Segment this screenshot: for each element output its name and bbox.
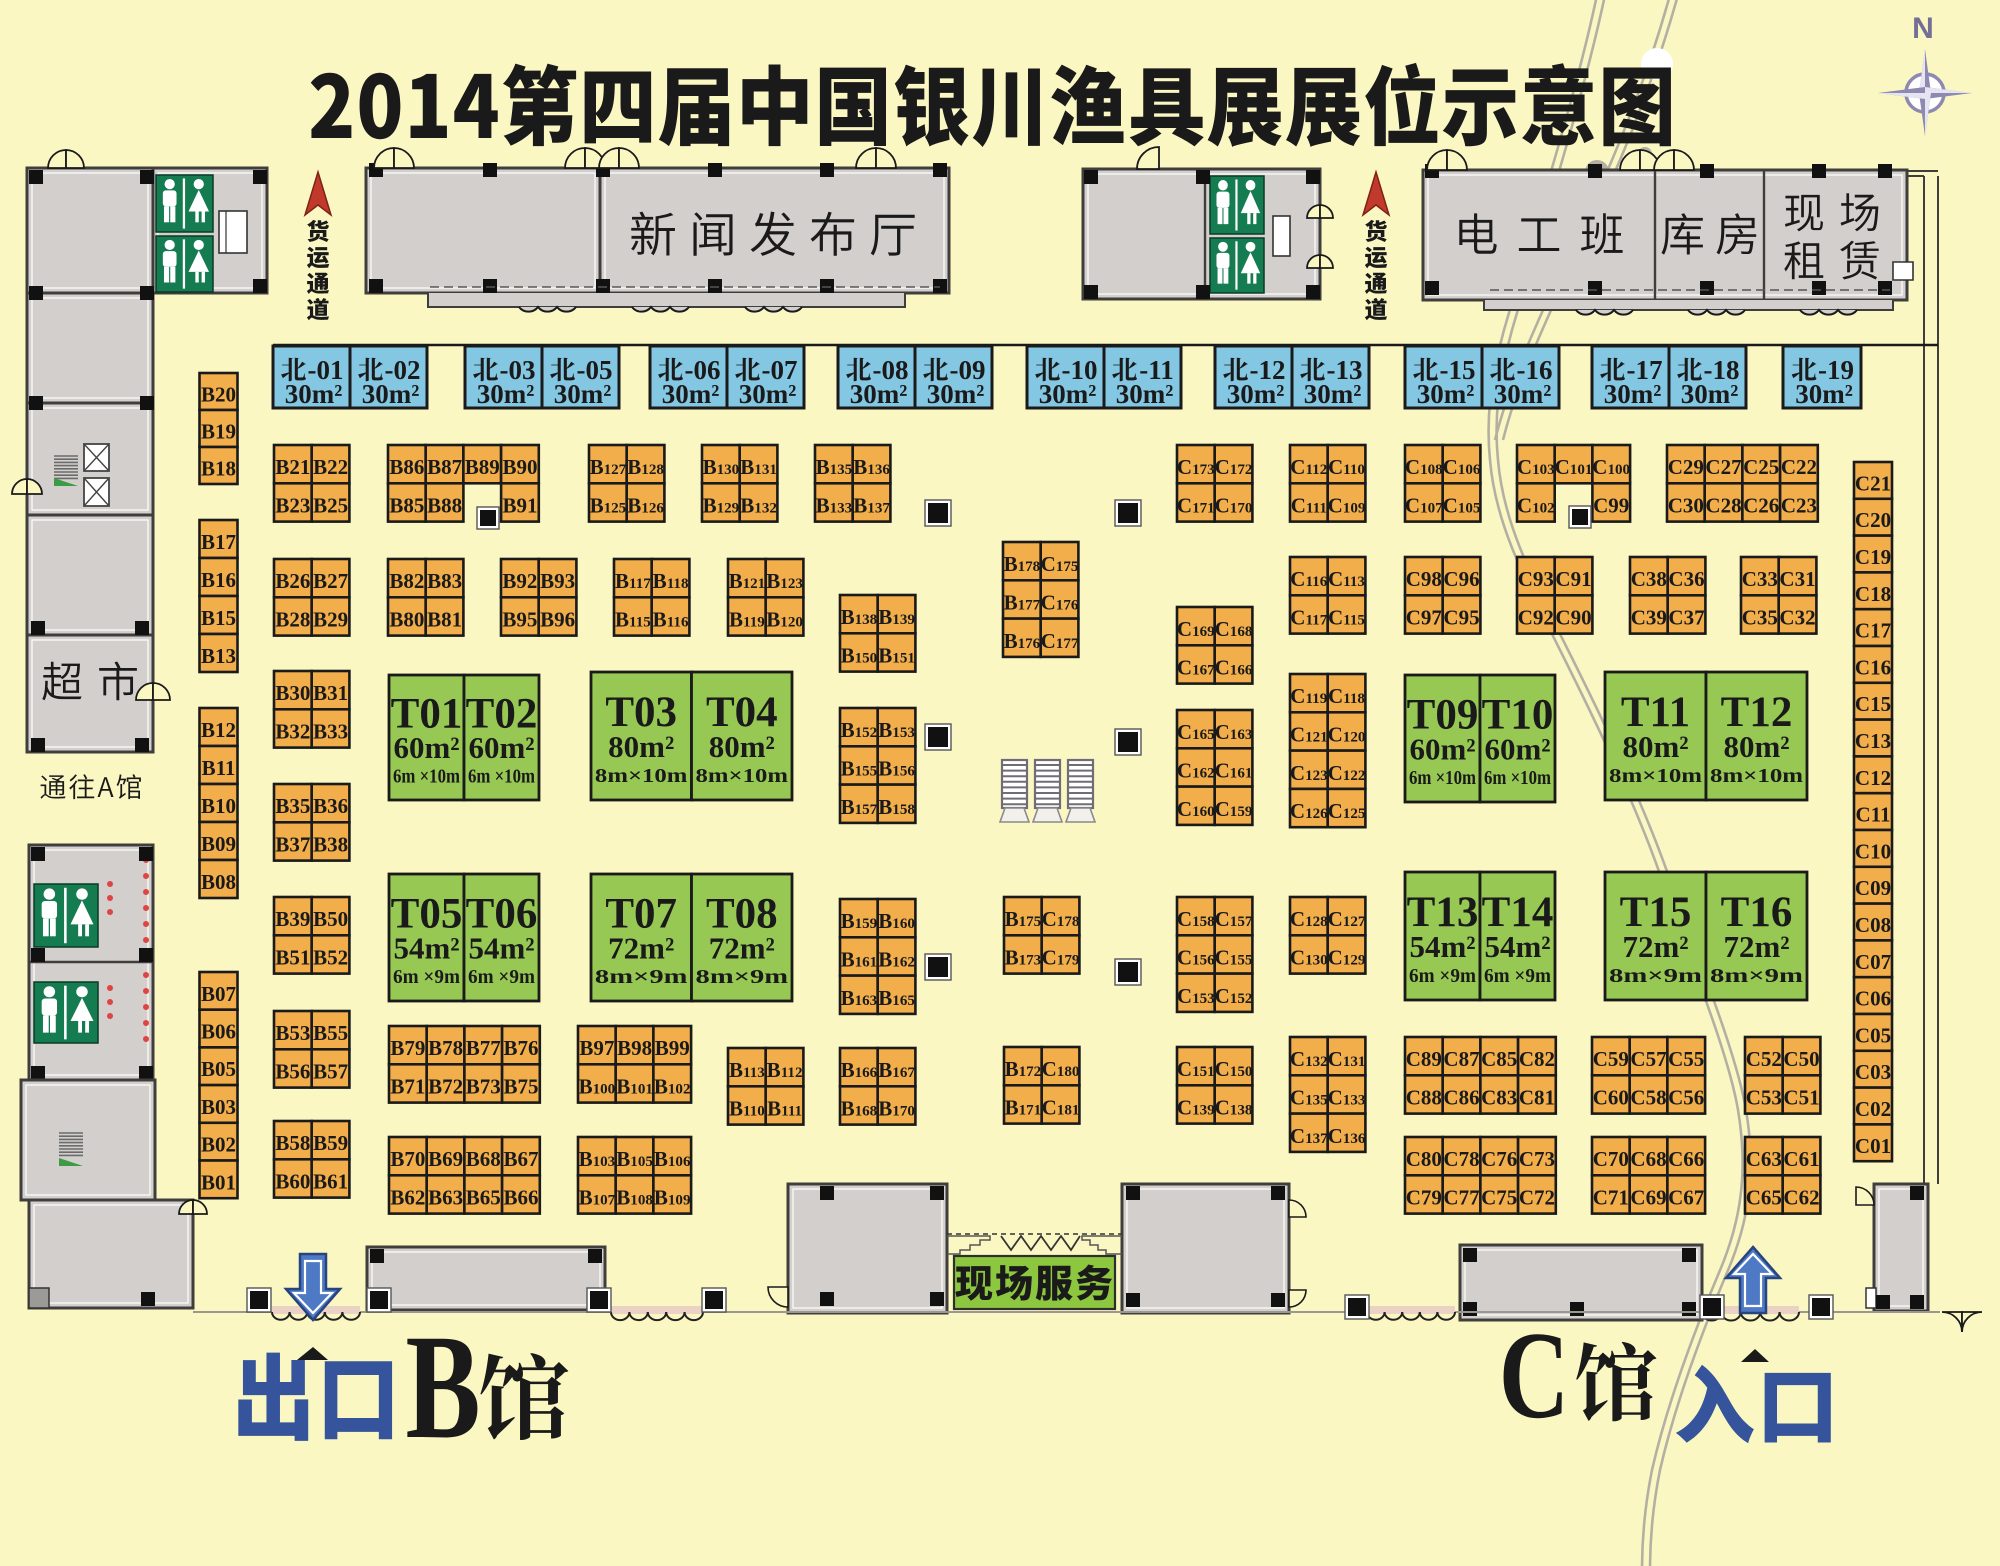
svg-text:B79: B79 <box>390 1036 425 1060</box>
svg-text:C07: C07 <box>1855 950 1891 974</box>
svg-text:B08: B08 <box>201 870 236 894</box>
svg-text:C09: C09 <box>1855 876 1891 900</box>
svg-text:8m×10m: 8m×10m <box>1710 765 1803 787</box>
svg-text:B37: B37 <box>275 832 310 856</box>
svg-text:C96: C96 <box>1443 567 1479 591</box>
svg-text:C13: C13 <box>1855 729 1891 753</box>
svg-text:30m²: 30m² <box>1417 379 1475 409</box>
svg-text:8m×9m: 8m×9m <box>595 966 688 988</box>
svg-text:C39: C39 <box>1631 605 1667 629</box>
svg-text:72m²: 72m² <box>1723 929 1789 964</box>
svg-text:N: N <box>1912 12 1934 45</box>
svg-text:B62: B62 <box>390 1186 425 1210</box>
svg-text:6m ×10m: 6m ×10m <box>1409 767 1476 789</box>
svg-text:B25: B25 <box>313 494 348 518</box>
svg-text:C99: C99 <box>1593 494 1629 518</box>
svg-text:B20: B20 <box>201 383 236 407</box>
svg-text:6m ×10m: 6m ×10m <box>1484 767 1551 789</box>
svg-text:B72: B72 <box>428 1075 463 1099</box>
svg-text:C73: C73 <box>1519 1147 1555 1171</box>
svg-text:C23: C23 <box>1781 494 1817 518</box>
svg-text:54m²: 54m² <box>1484 929 1550 964</box>
svg-text:B67: B67 <box>503 1147 538 1171</box>
svg-text:30m²: 30m² <box>362 379 420 409</box>
svg-text:C50: C50 <box>1783 1047 1819 1071</box>
svg-text:B70: B70 <box>390 1147 425 1171</box>
svg-text:B36: B36 <box>313 794 348 818</box>
svg-text:C02: C02 <box>1855 1097 1891 1121</box>
svg-text:B97: B97 <box>579 1036 614 1060</box>
svg-text:B29: B29 <box>313 607 348 631</box>
svg-text:72m²: 72m² <box>1622 929 1688 964</box>
svg-text:C69: C69 <box>1630 1186 1666 1210</box>
svg-text:B10: B10 <box>201 794 236 818</box>
svg-text:B95: B95 <box>502 607 537 631</box>
svg-text:B18: B18 <box>201 457 236 481</box>
svg-text:C91: C91 <box>1555 567 1591 591</box>
svg-text:B99: B99 <box>655 1036 690 1060</box>
svg-text:B39: B39 <box>275 907 310 931</box>
svg-text:C60: C60 <box>1593 1086 1629 1110</box>
svg-text:C31: C31 <box>1779 567 1815 591</box>
svg-text:C27: C27 <box>1705 455 1741 479</box>
svg-text:C01: C01 <box>1855 1134 1891 1158</box>
svg-text:C88: C88 <box>1406 1086 1442 1110</box>
svg-text:B51: B51 <box>275 945 310 969</box>
svg-text:6m ×9m: 6m ×9m <box>1409 965 1476 987</box>
svg-text:80m²: 80m² <box>1723 729 1789 764</box>
svg-text:30m²: 30m² <box>1681 379 1739 409</box>
svg-text:B73: B73 <box>466 1075 501 1099</box>
svg-text:C18: C18 <box>1855 582 1891 606</box>
svg-text:54m²: 54m² <box>1409 929 1475 964</box>
svg-text:C78: C78 <box>1443 1147 1479 1171</box>
svg-text:B01: B01 <box>201 1170 236 1194</box>
svg-text:C20: C20 <box>1855 508 1891 532</box>
svg-text:30m²: 30m² <box>1795 379 1853 409</box>
svg-text:C83: C83 <box>1481 1086 1517 1110</box>
svg-text:B86: B86 <box>389 455 424 479</box>
svg-text:C85: C85 <box>1481 1047 1517 1071</box>
svg-text:6m ×10m: 6m ×10m <box>468 766 535 788</box>
svg-text:C05: C05 <box>1855 1023 1891 1047</box>
svg-text:C82: C82 <box>1519 1047 1555 1071</box>
svg-text:C16: C16 <box>1855 655 1891 679</box>
svg-text:C59: C59 <box>1593 1047 1629 1071</box>
svg-text:C51: C51 <box>1783 1086 1819 1110</box>
svg-text:30m²: 30m² <box>739 379 797 409</box>
svg-text:C21: C21 <box>1855 471 1891 495</box>
svg-text:B66: B66 <box>503 1186 538 1210</box>
svg-text:30m²: 30m² <box>1227 379 1285 409</box>
svg-text:B30: B30 <box>275 681 310 705</box>
svg-text:C29: C29 <box>1668 455 1704 479</box>
svg-text:B57: B57 <box>313 1060 348 1084</box>
svg-text:B69: B69 <box>428 1147 463 1171</box>
svg-text:C06: C06 <box>1855 987 1891 1011</box>
svg-text:6m ×10m: 6m ×10m <box>393 766 460 788</box>
svg-text:8m×10m: 8m×10m <box>595 765 688 787</box>
svg-text:6m ×9m: 6m ×9m <box>393 966 460 988</box>
svg-text:B32: B32 <box>275 719 310 743</box>
svg-text:C87: C87 <box>1443 1047 1479 1071</box>
svg-text:30m²: 30m² <box>285 379 343 409</box>
svg-text:B77: B77 <box>466 1036 501 1060</box>
svg-text:C37: C37 <box>1668 605 1704 629</box>
svg-text:30m²: 30m² <box>662 379 720 409</box>
svg-text:B28: B28 <box>275 607 310 631</box>
svg-text:C68: C68 <box>1630 1147 1666 1171</box>
svg-text:C72: C72 <box>1519 1186 1555 1210</box>
svg-text:C26: C26 <box>1743 494 1779 518</box>
svg-text:B03: B03 <box>201 1095 236 1119</box>
svg-text:B91: B91 <box>502 494 537 518</box>
svg-text:C77: C77 <box>1443 1186 1479 1210</box>
svg-text:C15: C15 <box>1855 692 1891 716</box>
svg-text:B27: B27 <box>313 569 348 593</box>
svg-text:C80: C80 <box>1406 1147 1442 1171</box>
svg-text:72m²: 72m² <box>608 931 674 966</box>
svg-text:C89: C89 <box>1406 1047 1442 1071</box>
svg-text:C63: C63 <box>1746 1147 1782 1171</box>
svg-text:C32: C32 <box>1779 605 1815 629</box>
svg-text:C97: C97 <box>1406 605 1442 629</box>
svg-text:B68: B68 <box>466 1147 501 1171</box>
svg-text:C52: C52 <box>1746 1047 1782 1071</box>
svg-text:C75: C75 <box>1481 1186 1517 1210</box>
svg-text:B19: B19 <box>201 420 236 444</box>
svg-text:8m×10m: 8m×10m <box>696 765 789 787</box>
svg-text:C71: C71 <box>1593 1186 1629 1210</box>
svg-text:C55: C55 <box>1668 1047 1704 1071</box>
svg-text:B05: B05 <box>201 1057 236 1081</box>
svg-text:C67: C67 <box>1668 1186 1704 1210</box>
svg-text:B53: B53 <box>275 1021 310 1045</box>
svg-text:B81: B81 <box>427 607 462 631</box>
svg-text:B58: B58 <box>275 1131 310 1155</box>
svg-text:C08: C08 <box>1855 913 1891 937</box>
svg-text:C93: C93 <box>1518 567 1554 591</box>
svg-text:B80: B80 <box>389 607 424 631</box>
svg-text:B12: B12 <box>201 718 236 742</box>
svg-text:B31: B31 <box>313 681 348 705</box>
svg-text:30m²: 30m² <box>1116 379 1174 409</box>
svg-text:B26: B26 <box>275 569 310 593</box>
svg-text:C38: C38 <box>1631 567 1667 591</box>
svg-text:C62: C62 <box>1783 1186 1819 1210</box>
svg-text:30m²: 30m² <box>927 379 985 409</box>
svg-text:C36: C36 <box>1668 567 1704 591</box>
svg-text:C57: C57 <box>1630 1047 1666 1071</box>
svg-text:C90: C90 <box>1555 605 1591 629</box>
svg-text:C86: C86 <box>1443 1086 1479 1110</box>
svg-text:C79: C79 <box>1406 1186 1442 1210</box>
svg-text:B21: B21 <box>275 455 310 479</box>
svg-text:72m²: 72m² <box>709 931 775 966</box>
svg-text:C03: C03 <box>1855 1060 1891 1084</box>
svg-text:B17: B17 <box>201 530 236 554</box>
svg-text:B16: B16 <box>201 568 236 592</box>
svg-text:30m²: 30m² <box>1604 379 1662 409</box>
svg-text:C10: C10 <box>1855 839 1891 863</box>
svg-text:8m×9m: 8m×9m <box>1710 965 1803 987</box>
svg-text:B92: B92 <box>502 569 537 593</box>
svg-text:B33: B33 <box>313 719 348 743</box>
svg-text:C98: C98 <box>1406 567 1442 591</box>
svg-text:B02: B02 <box>201 1133 236 1157</box>
svg-text:B93: B93 <box>540 569 575 593</box>
svg-text:B15: B15 <box>201 606 236 630</box>
svg-text:C30: C30 <box>1668 494 1704 518</box>
svg-text:B13: B13 <box>201 644 236 668</box>
svg-text:C66: C66 <box>1668 1147 1704 1171</box>
svg-text:B55: B55 <box>313 1021 348 1045</box>
svg-text:B56: B56 <box>275 1060 310 1084</box>
svg-text:C65: C65 <box>1746 1186 1782 1210</box>
svg-text:B06: B06 <box>201 1020 236 1044</box>
svg-text:C61: C61 <box>1783 1147 1819 1171</box>
svg-text:60m²: 60m² <box>1484 732 1550 767</box>
svg-text:B76: B76 <box>503 1036 538 1060</box>
svg-text:C53: C53 <box>1746 1086 1782 1110</box>
svg-text:B85: B85 <box>389 494 424 518</box>
svg-text:B87: B87 <box>427 455 462 479</box>
svg-text:B52: B52 <box>313 945 348 969</box>
svg-text:8m×9m: 8m×9m <box>696 966 789 988</box>
svg-text:60m²: 60m² <box>393 730 459 765</box>
svg-text:C76: C76 <box>1481 1147 1517 1171</box>
svg-text:C17: C17 <box>1855 619 1891 643</box>
svg-text:B07: B07 <box>201 982 236 1006</box>
svg-text:B09: B09 <box>201 832 236 856</box>
svg-text:B23: B23 <box>275 494 310 518</box>
svg-text:C35: C35 <box>1742 605 1778 629</box>
svg-text:B75: B75 <box>503 1075 538 1099</box>
svg-text:B78: B78 <box>428 1036 463 1060</box>
svg-text:30m²: 30m² <box>1039 379 1097 409</box>
svg-text:C58: C58 <box>1630 1086 1666 1110</box>
svg-text:6m ×9m: 6m ×9m <box>1484 965 1551 987</box>
svg-text:30m²: 30m² <box>850 379 908 409</box>
svg-text:B60: B60 <box>275 1170 310 1194</box>
svg-text:B90: B90 <box>502 455 537 479</box>
svg-text:B98: B98 <box>617 1036 652 1060</box>
svg-text:8m×9m: 8m×9m <box>1609 965 1702 987</box>
svg-text:C19: C19 <box>1855 545 1891 569</box>
svg-text:C95: C95 <box>1443 605 1479 629</box>
svg-text:B50: B50 <box>313 907 348 931</box>
svg-text:6m ×9m: 6m ×9m <box>468 966 535 988</box>
svg-text:C92: C92 <box>1518 605 1554 629</box>
svg-text:C70: C70 <box>1593 1147 1629 1171</box>
svg-text:C11: C11 <box>1855 803 1890 827</box>
svg-text:30m²: 30m² <box>554 379 612 409</box>
svg-text:30m²: 30m² <box>477 379 535 409</box>
svg-text:B83: B83 <box>427 569 462 593</box>
svg-text:B71: B71 <box>390 1075 425 1099</box>
svg-text:80m²: 80m² <box>709 729 775 764</box>
svg-text:B63: B63 <box>428 1186 463 1210</box>
svg-text:8m×10m: 8m×10m <box>1609 765 1702 787</box>
svg-text:B89: B89 <box>465 455 500 479</box>
svg-text:C22: C22 <box>1781 455 1817 479</box>
svg-text:C12: C12 <box>1855 766 1891 790</box>
svg-text:C33: C33 <box>1742 567 1778 591</box>
svg-text:B22: B22 <box>313 455 348 479</box>
svg-text:80m²: 80m² <box>1622 729 1688 764</box>
svg-text:B88: B88 <box>427 494 462 518</box>
svg-text:B96: B96 <box>540 607 575 631</box>
svg-text:C81: C81 <box>1519 1086 1555 1110</box>
svg-text:B65: B65 <box>466 1186 501 1210</box>
svg-text:60m²: 60m² <box>468 730 534 765</box>
svg-text:B35: B35 <box>275 794 310 818</box>
svg-text:30m²: 30m² <box>1304 379 1362 409</box>
svg-text:B11: B11 <box>202 756 236 780</box>
svg-text:B61: B61 <box>313 1170 348 1194</box>
svg-text:C25: C25 <box>1743 455 1779 479</box>
svg-text:30m²: 30m² <box>1494 379 1552 409</box>
svg-text:B38: B38 <box>313 832 348 856</box>
svg-text:C28: C28 <box>1705 494 1741 518</box>
svg-text:54m²: 54m² <box>468 931 534 966</box>
svg-text:B59: B59 <box>313 1131 348 1155</box>
svg-text:60m²: 60m² <box>1409 732 1475 767</box>
svg-text:B82: B82 <box>389 569 424 593</box>
svg-text:C56: C56 <box>1668 1086 1704 1110</box>
svg-text:80m²: 80m² <box>608 729 674 764</box>
svg-text:54m²: 54m² <box>393 931 459 966</box>
